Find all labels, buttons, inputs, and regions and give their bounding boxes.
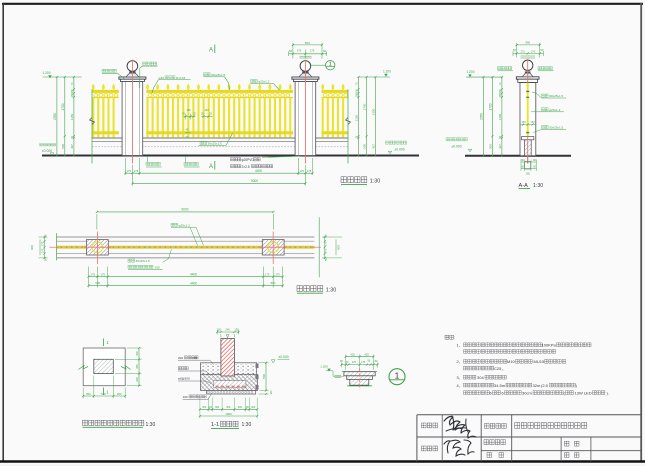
svg-text:A: A xyxy=(209,48,213,54)
svg-text:φ25x1.2: φ25x1.2 xyxy=(549,108,561,112)
svg-text:500: 500 xyxy=(61,144,65,149)
svg-text:600: 600 xyxy=(30,245,34,250)
svg-text:150: 150 xyxy=(70,93,74,98)
svg-text:1: 1 xyxy=(329,62,332,68)
svg-text:1150: 1150 xyxy=(70,114,74,121)
svg-text:±0.000: ±0.000 xyxy=(451,144,461,148)
svg-text:A-A: A-A xyxy=(519,183,529,189)
svg-text:300: 300 xyxy=(135,377,139,382)
svg-text:φ25x1.2: φ25x1.2 xyxy=(179,223,191,227)
svg-text:425: 425 xyxy=(364,352,369,356)
svg-text:1700: 1700 xyxy=(363,103,367,110)
svg-text:175: 175 xyxy=(265,272,270,276)
svg-text:30cm: 30cm xyxy=(522,391,532,396)
svg-text:φ25x1.2: φ25x1.2 xyxy=(258,80,270,84)
svg-text:500: 500 xyxy=(489,144,493,149)
svg-text:1.200: 1.200 xyxy=(467,70,475,74)
svg-text:、: 、 xyxy=(459,344,463,348)
svg-text:175: 175 xyxy=(323,248,327,253)
svg-text:±0.000: ±0.000 xyxy=(42,149,52,153)
svg-text:175: 175 xyxy=(41,248,45,253)
svg-text:100KPa: 100KPa xyxy=(542,343,557,348)
svg-text:200: 200 xyxy=(178,356,183,360)
svg-text:4400: 4400 xyxy=(255,169,262,173)
svg-text:150: 150 xyxy=(498,93,502,98)
svg-text:±0.000: ±0.000 xyxy=(394,148,404,152)
svg-text:500: 500 xyxy=(271,281,276,285)
svg-text:φ6@200: φ6@200 xyxy=(178,376,190,380)
svg-text:300: 300 xyxy=(202,406,207,409)
svg-text:C15: C15 xyxy=(192,356,198,360)
svg-text:130: 130 xyxy=(204,108,209,112)
svg-text:30x25x1.5: 30x25x1.5 xyxy=(136,259,151,263)
svg-text:1-1: 1-1 xyxy=(211,422,219,428)
svg-text:400: 400 xyxy=(226,406,231,409)
svg-text:100: 100 xyxy=(270,390,273,395)
svg-text:175: 175 xyxy=(300,169,305,173)
svg-text:(2.5: (2.5 xyxy=(541,383,549,388)
svg-text:300: 300 xyxy=(135,351,139,356)
svg-text:500: 500 xyxy=(363,144,367,149)
svg-text:5000: 5000 xyxy=(251,179,258,183)
svg-text:150: 150 xyxy=(530,120,535,124)
svg-text:175: 175 xyxy=(134,169,139,173)
svg-text::: : xyxy=(454,335,455,340)
svg-text:175: 175 xyxy=(41,241,45,246)
svg-text:304: 304 xyxy=(477,375,484,380)
svg-text:30x25x1.5: 30x25x1.5 xyxy=(211,73,226,77)
svg-text:500: 500 xyxy=(101,392,106,396)
svg-text:1700: 1700 xyxy=(61,103,65,110)
svg-text:150: 150 xyxy=(155,266,160,270)
svg-text:150: 150 xyxy=(355,89,359,94)
svg-text:5000: 5000 xyxy=(181,208,188,212)
svg-text:170: 170 xyxy=(520,49,525,53)
svg-text:500: 500 xyxy=(305,41,310,45)
svg-text:300: 300 xyxy=(215,406,220,409)
svg-text:2×2.5: 2×2.5 xyxy=(242,165,250,169)
svg-text:2350: 2350 xyxy=(53,113,57,120)
svg-text:φ20PVC: φ20PVC xyxy=(242,158,255,162)
svg-text:175: 175 xyxy=(323,241,327,246)
svg-text:50: 50 xyxy=(323,49,326,53)
svg-text:175: 175 xyxy=(310,49,315,53)
svg-text:1700: 1700 xyxy=(489,103,493,110)
svg-text:340: 340 xyxy=(525,41,530,45)
svg-text:175: 175 xyxy=(275,272,280,276)
svg-text:1: 1 xyxy=(395,371,400,381)
svg-text:300: 300 xyxy=(86,392,91,396)
svg-text:φ30: φ30 xyxy=(159,76,165,80)
svg-text:175: 175 xyxy=(91,272,96,276)
svg-text:437: 437 xyxy=(372,144,376,149)
svg-text:300: 300 xyxy=(251,406,256,409)
svg-text:1.200: 1.200 xyxy=(320,365,328,369)
svg-text:437: 437 xyxy=(498,144,502,149)
svg-text:175: 175 xyxy=(297,49,302,53)
svg-text:30x25x1.5: 30x25x1.5 xyxy=(549,94,564,98)
svg-text:150: 150 xyxy=(498,89,502,94)
svg-text:1:30: 1:30 xyxy=(146,422,156,428)
svg-text:。: 。 xyxy=(502,367,506,371)
svg-text:1.200: 1.200 xyxy=(43,71,51,75)
svg-text:170: 170 xyxy=(531,49,536,53)
svg-text:1150: 1150 xyxy=(498,114,502,121)
svg-text:).: ). xyxy=(607,391,609,396)
svg-text:100: 100 xyxy=(186,108,191,112)
svg-text:425: 425 xyxy=(350,352,355,356)
svg-text:437: 437 xyxy=(70,144,74,149)
svg-text:240: 240 xyxy=(225,328,230,332)
svg-text:450: 450 xyxy=(135,364,139,369)
svg-text:1:30: 1:30 xyxy=(533,183,543,189)
svg-text:±0.000: ±0.000 xyxy=(278,355,288,359)
svg-text:4400: 4400 xyxy=(190,273,197,277)
svg-text:、: 、 xyxy=(459,376,463,380)
svg-text:50: 50 xyxy=(289,49,292,53)
svg-text:13W LED: 13W LED xyxy=(575,391,592,396)
svg-text:34.5m: 34.5m xyxy=(494,383,506,388)
svg-text:100: 100 xyxy=(183,395,188,399)
svg-text:30x25x1.5: 30x25x1.5 xyxy=(208,142,223,146)
svg-text:175: 175 xyxy=(127,169,132,173)
svg-text:D=133: D=133 xyxy=(176,76,185,80)
svg-text:300: 300 xyxy=(117,392,122,396)
svg-text:1150: 1150 xyxy=(355,115,359,122)
svg-text:175: 175 xyxy=(361,361,366,364)
svg-text:、: 、 xyxy=(459,384,463,388)
svg-text:MU15: MU15 xyxy=(534,359,545,364)
svg-text:275: 275 xyxy=(352,361,357,364)
svg-text:30x25x1.5: 30x25x1.5 xyxy=(549,126,564,130)
svg-text:2350: 2350 xyxy=(372,108,376,115)
svg-text:6: 6 xyxy=(490,391,492,396)
svg-text:1900: 1900 xyxy=(225,412,232,416)
svg-text:150: 150 xyxy=(355,93,359,98)
svg-text:32m: 32m xyxy=(533,383,541,388)
svg-text:175: 175 xyxy=(307,169,312,173)
svg-text:175: 175 xyxy=(101,272,106,276)
svg-text:150: 150 xyxy=(70,89,74,94)
svg-text:1.200: 1.200 xyxy=(383,70,391,74)
svg-text:300: 300 xyxy=(238,406,243,409)
svg-text:150: 150 xyxy=(217,328,222,332)
svg-text:1:30: 1:30 xyxy=(326,287,337,293)
svg-text:C25: C25 xyxy=(494,366,502,371)
svg-text:1:30: 1:30 xyxy=(370,179,381,185)
svg-text:500: 500 xyxy=(95,281,100,285)
svg-text:2350: 2350 xyxy=(480,113,484,120)
svg-text:6: 6 xyxy=(502,391,504,396)
svg-text:、: 、 xyxy=(459,360,463,364)
svg-text:1:30: 1:30 xyxy=(242,422,252,428)
svg-text:4400: 4400 xyxy=(190,281,197,285)
svg-text:600: 600 xyxy=(337,245,341,250)
svg-text:M10: M10 xyxy=(507,359,516,364)
svg-text:A: A xyxy=(209,164,213,170)
svg-text:160: 160 xyxy=(526,173,531,176)
svg-text:500: 500 xyxy=(262,374,266,379)
